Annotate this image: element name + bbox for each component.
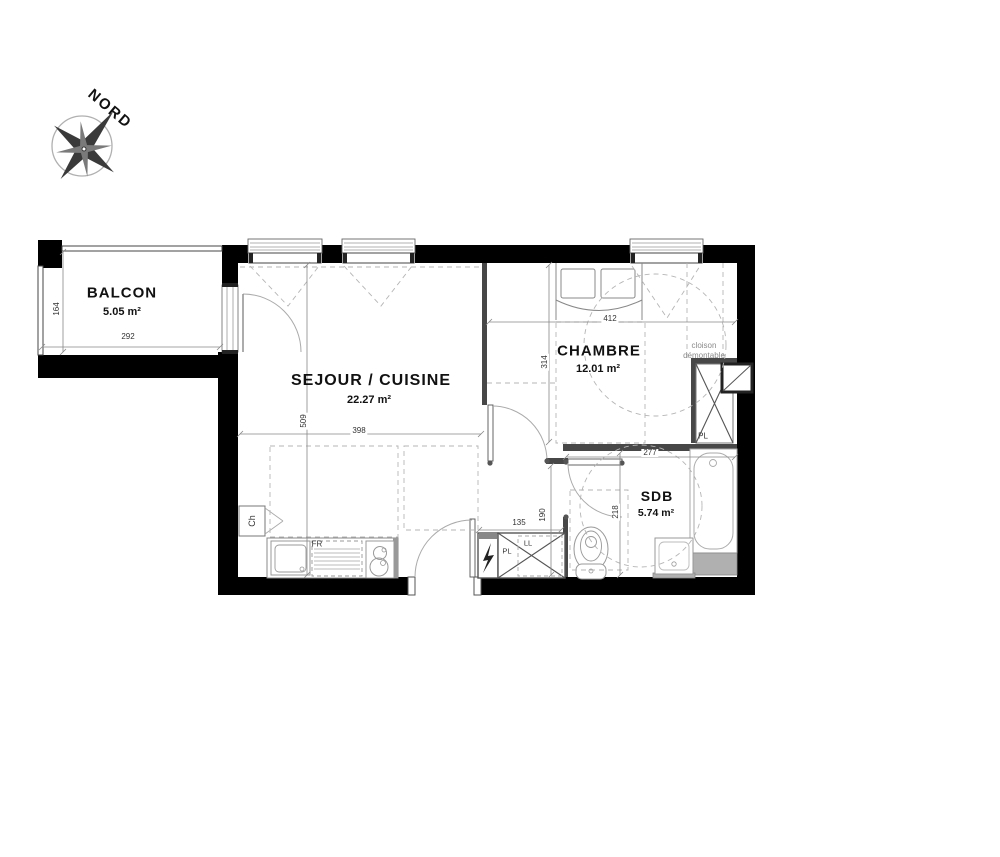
dim-balcon-height: 164 — [53, 300, 61, 317]
dim-balcon-width: 292 — [119, 333, 136, 341]
cooktop — [366, 541, 394, 578]
duct-shaft — [722, 364, 752, 392]
chambre-area: 12.01 m² — [576, 363, 620, 375]
window-chambre — [630, 239, 703, 263]
cloison-note-line2: démontable — [683, 351, 725, 361]
sdb-name: SDB — [641, 488, 674, 504]
chambre-closet-label: PL — [698, 432, 708, 441]
sejour-area: 22.27 m² — [347, 394, 391, 406]
dim-hall-height: 190 — [539, 506, 547, 523]
balcon-area: 5.05 m² — [103, 306, 141, 318]
kitchen-sink — [271, 541, 310, 575]
balcony-door — [222, 283, 301, 354]
bed — [556, 263, 642, 320]
water-heater — [239, 506, 283, 536]
compass-rose-icon — [28, 87, 144, 205]
sejour-name: SEJOUR / CUISINE — [291, 372, 451, 390]
dim-sdb-width: 277 — [641, 449, 658, 457]
floor-plan: NORD BALCON 5.05 m² SEJOUR / CUISINE 22.… — [0, 0, 1000, 857]
washer-label: LL — [524, 539, 532, 548]
dim-sejour-width: 398 — [350, 427, 367, 435]
hall-closet-label: PL — [502, 547, 511, 556]
dim-sdb-height: 218 — [612, 503, 620, 520]
dim-chambre-height: 314 — [541, 353, 549, 370]
fridge-label: FR — [312, 540, 323, 549]
electrical-panel — [478, 533, 498, 578]
window-sejour-1 — [248, 239, 322, 263]
floor-plan-canvas — [0, 0, 1000, 857]
window-sejour-2 — [342, 239, 415, 263]
dim-sejour-height: 509 — [300, 412, 308, 429]
bathtub — [690, 449, 737, 553]
washbasin — [655, 538, 693, 574]
balcon-name: BALCON — [87, 285, 157, 302]
dim-hall-width: 135 — [510, 519, 527, 527]
dim-chambre-width: 412 — [601, 315, 618, 323]
water-heater-label: Ch — [247, 515, 257, 527]
cloison-note-line1: cloison — [692, 341, 717, 351]
chambre-name: CHAMBRE — [557, 343, 641, 360]
toilet — [574, 527, 608, 579]
sdb-area: 5.74 m² — [638, 507, 674, 519]
